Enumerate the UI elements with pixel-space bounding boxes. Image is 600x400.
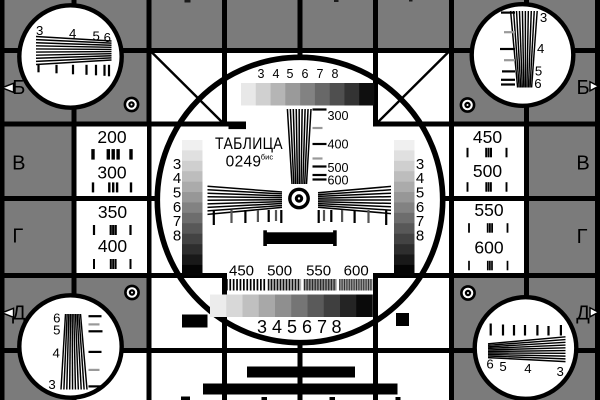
svg-text:8: 8 — [416, 227, 424, 244]
svg-text:7: 7 — [317, 317, 327, 337]
svg-text:200: 200 — [97, 127, 126, 147]
svg-text:Д: Д — [576, 303, 590, 325]
svg-text:4: 4 — [69, 26, 76, 41]
svg-text:450: 450 — [229, 262, 254, 279]
svg-text:400: 400 — [328, 137, 349, 151]
svg-text:0249: 0249 — [226, 154, 262, 171]
svg-text:5: 5 — [287, 317, 297, 337]
svg-text:300: 300 — [328, 109, 349, 123]
svg-text:6: 6 — [104, 30, 111, 45]
svg-text:3: 3 — [36, 23, 43, 38]
svg-text:3: 3 — [258, 67, 265, 81]
svg-text:Г: Г — [12, 226, 23, 248]
svg-text:550: 550 — [306, 262, 331, 279]
svg-text:4: 4 — [272, 317, 282, 337]
svg-text:4: 4 — [524, 361, 531, 376]
svg-text:4: 4 — [537, 41, 544, 56]
svg-text:Г: Г — [577, 226, 588, 248]
svg-text:3: 3 — [48, 377, 55, 392]
svg-text:8: 8 — [331, 317, 341, 337]
svg-text:6: 6 — [534, 76, 541, 91]
svg-text:бис: бис — [261, 153, 274, 162]
svg-text:400: 400 — [98, 236, 127, 256]
svg-text:350: 350 — [98, 202, 127, 222]
svg-text:ТАБЛИЦА: ТАБЛИЦА — [215, 135, 283, 153]
svg-text:3: 3 — [557, 364, 564, 379]
svg-text:В: В — [576, 153, 589, 175]
svg-text:3: 3 — [257, 317, 267, 337]
svg-text:4: 4 — [53, 345, 60, 360]
svg-text:600: 600 — [474, 238, 503, 258]
svg-text:В: В — [12, 153, 25, 175]
svg-text:5: 5 — [93, 29, 100, 44]
svg-text:550: 550 — [474, 200, 503, 220]
svg-text:5: 5 — [499, 359, 506, 374]
svg-text:5: 5 — [53, 323, 60, 338]
svg-text:600: 600 — [328, 173, 349, 187]
svg-text:7: 7 — [317, 67, 324, 81]
svg-text:600: 600 — [344, 262, 369, 279]
svg-text:3: 3 — [540, 10, 547, 25]
svg-text:Б: Б — [576, 77, 589, 99]
svg-text:450: 450 — [473, 127, 502, 147]
svg-text:500: 500 — [267, 262, 292, 279]
svg-text:5: 5 — [287, 67, 294, 81]
svg-text:8: 8 — [332, 67, 339, 81]
svg-text:4: 4 — [273, 67, 280, 81]
svg-text:6: 6 — [486, 356, 493, 371]
svg-text:8: 8 — [173, 227, 181, 244]
svg-text:6: 6 — [302, 317, 312, 337]
svg-text:6: 6 — [302, 67, 309, 81]
svg-text:300: 300 — [97, 163, 126, 183]
svg-text:500: 500 — [473, 161, 502, 181]
